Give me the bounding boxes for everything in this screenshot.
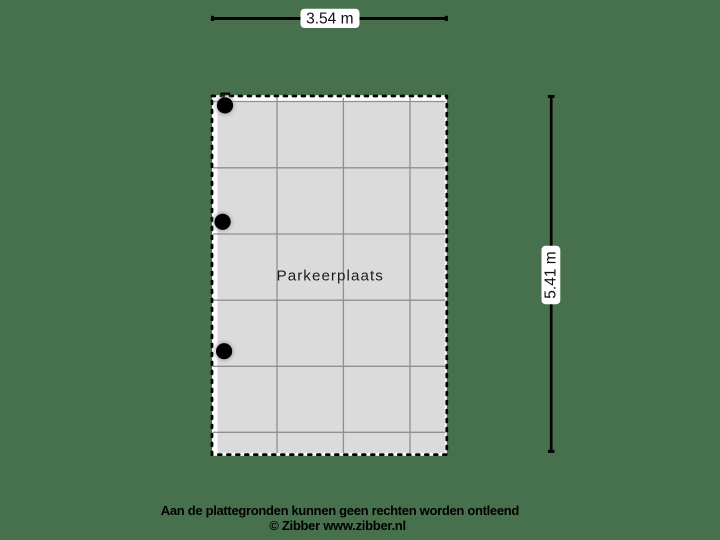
svg-text:Aan de plattegronden kunnen ge: Aan de plattegronden kunnen geen rechten… xyxy=(161,503,520,518)
svg-text:© Zibber www.zibber.nl: © Zibber www.zibber.nl xyxy=(269,518,406,533)
svg-text:5.41 m: 5.41 m xyxy=(543,251,560,298)
svg-text:Parkeerplaats: Parkeerplaats xyxy=(277,268,384,285)
svg-text:3.54 m: 3.54 m xyxy=(306,10,353,27)
